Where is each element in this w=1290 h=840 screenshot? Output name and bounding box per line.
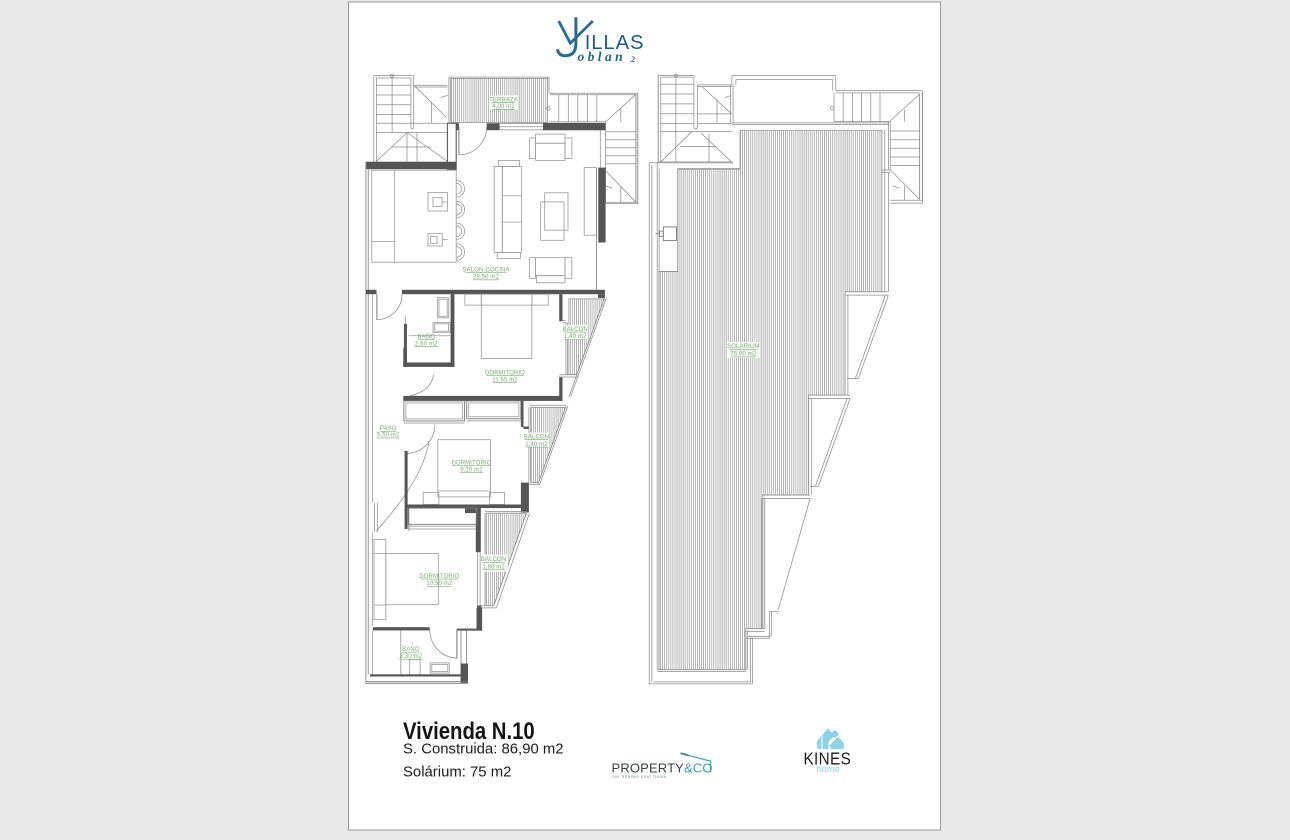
svg-text:Solárium: 75 m2: Solárium: 75 m2 [403, 765, 511, 781]
svg-text:Vivienda N.10: Vivienda N.10 [403, 717, 535, 744]
svg-text:BAÑO: BAÑO [402, 646, 420, 653]
svg-text:S. Construida: 86,90 m2: S. Construida: 86,90 m2 [403, 742, 564, 758]
svg-text:BAÑO: BAÑO [418, 333, 436, 340]
svg-text:home: home [817, 764, 840, 774]
svg-text:oblan: oblan [578, 49, 627, 64]
svg-text:2: 2 [630, 55, 635, 64]
svg-text:our houses your home: our houses your home [612, 774, 667, 779]
